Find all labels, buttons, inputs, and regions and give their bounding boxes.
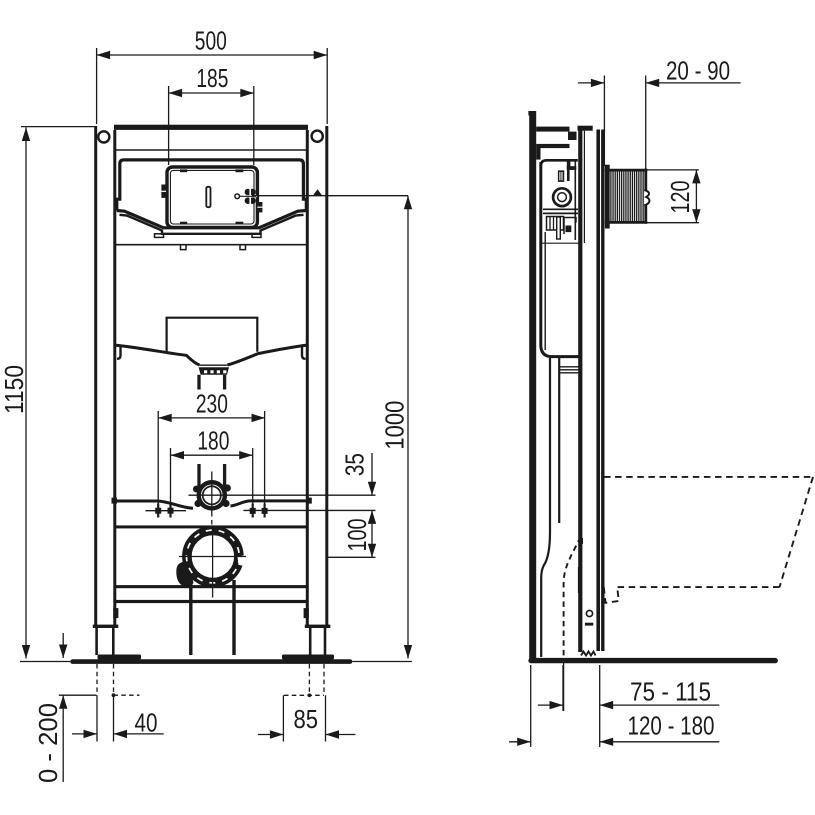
svg-text:40: 40 [135,709,158,737]
svg-text:120 - 180: 120 - 180 [628,713,715,741]
svg-text:100: 100 [344,519,372,552]
svg-text:0 - 200: 0 - 200 [35,703,63,783]
svg-text:180: 180 [197,428,229,456]
svg-text:35: 35 [342,453,370,476]
svg-text:20 - 90: 20 - 90 [666,58,730,86]
svg-text:230: 230 [196,391,228,419]
svg-text:120: 120 [667,181,695,214]
svg-text:1000: 1000 [382,401,410,450]
svg-text:1150: 1150 [1,365,29,414]
svg-text:500: 500 [195,27,227,55]
svg-text:85: 85 [294,706,319,734]
svg-text:185: 185 [196,65,228,93]
svg-text:75 - 115: 75 - 115 [630,679,711,707]
